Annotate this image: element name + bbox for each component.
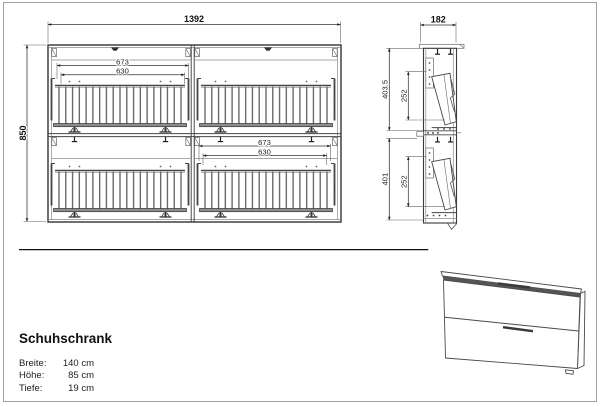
spec-label: Tiefe:: [19, 383, 59, 395]
wire-basket-top-left: [51, 79, 190, 133]
shelf-bolts: [72, 137, 314, 142]
perspective-view: [441, 272, 585, 375]
wire-basket-bottom-left: [51, 164, 190, 218]
spec-label: Breite:: [19, 358, 59, 370]
dim-basket-inner-bottom: 630: [258, 147, 271, 156]
side-foot: [448, 223, 457, 229]
spec-list: Breite: 140 cm Höhe: 85 cm Tiefe: 19 cm: [19, 358, 94, 395]
cabinet-foot: [566, 370, 574, 375]
spec-label: Höhe:: [19, 370, 59, 382]
spec-row-width: Breite: 140 cm: [19, 358, 94, 370]
dim-lower-section: 401: [381, 173, 390, 186]
spec-row-depth: Tiefe: 19 cm: [19, 383, 94, 395]
technical-drawing-sheet: 1392 850 673 630 673 630: [0, 0, 600, 407]
dim-lower-opening: 252: [400, 175, 409, 188]
spec-row-height: Höhe: 85 cm: [19, 370, 94, 382]
wire-basket-top-right: [197, 79, 336, 133]
side-view-drawing: [417, 44, 464, 229]
basket-cross-sections: [426, 58, 434, 178]
dim-upper-opening: 252: [400, 89, 409, 102]
tilted-flap-upper: [432, 73, 457, 130]
dim-basket-outer-top: 673: [116, 57, 129, 66]
front-view-drawing: [48, 45, 341, 222]
product-title: Schuhschrank: [19, 331, 112, 346]
spec-value: 85 cm: [59, 370, 94, 382]
dim-upper-section: 403.5: [381, 80, 390, 99]
dim-depth: 182: [431, 15, 446, 25]
dim-total-width: 1392: [184, 14, 204, 24]
wire-basket-bottom-right: [197, 164, 336, 218]
spec-value: 140 cm: [59, 358, 94, 370]
spec-value: 19 cm: [59, 383, 94, 395]
dim-total-height: 850: [18, 125, 28, 140]
dim-basket-inner-top: 630: [116, 67, 129, 76]
dim-basket-outer-bottom: 673: [258, 138, 271, 147]
